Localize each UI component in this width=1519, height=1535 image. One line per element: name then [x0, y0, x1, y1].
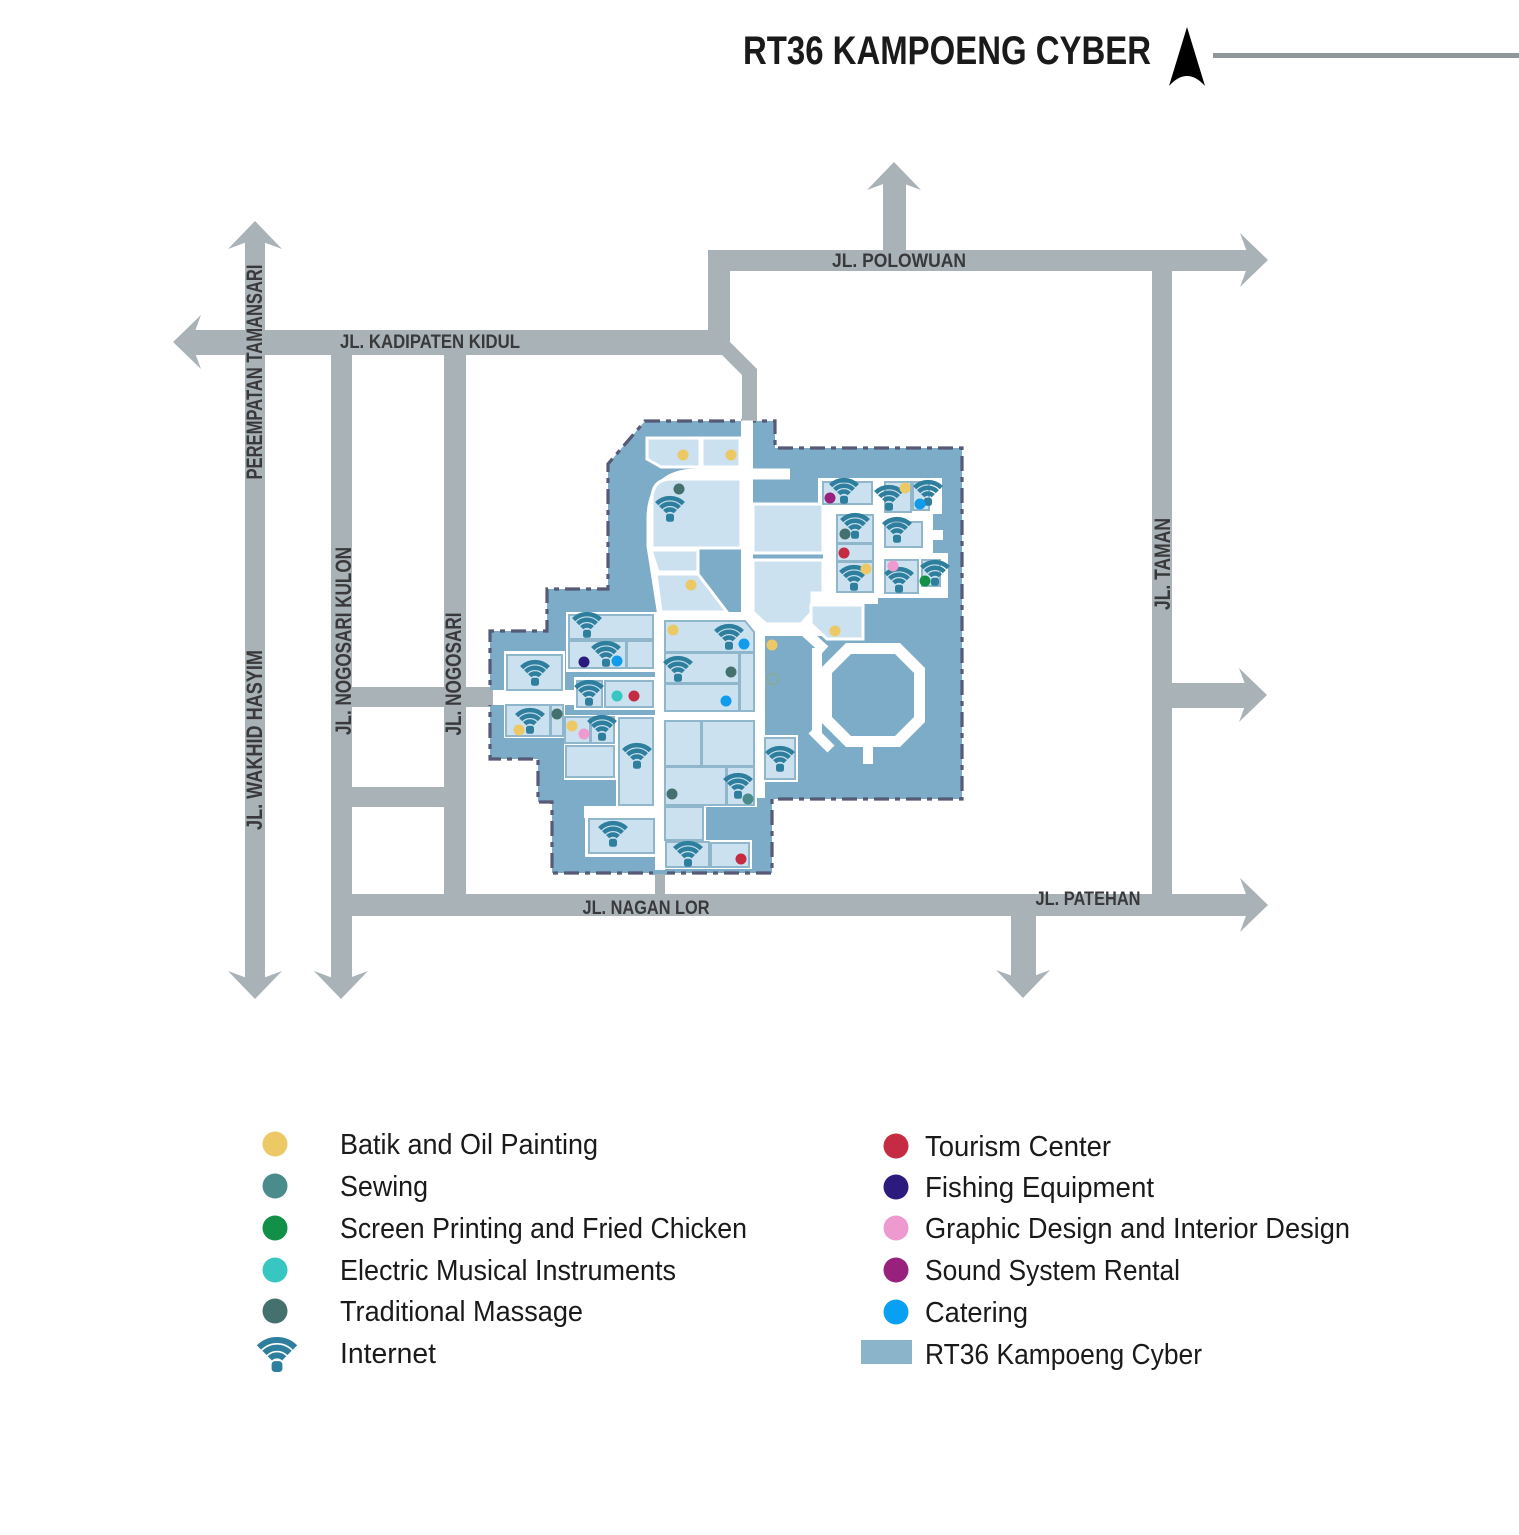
- svg-text:JL. NOGOSARI KULON: JL. NOGOSARI KULON: [331, 547, 356, 735]
- svg-text:RT36 Kampoeng Cyber: RT36 Kampoeng Cyber: [925, 1339, 1202, 1371]
- svg-text:JL. TAMAN: JL. TAMAN: [1150, 518, 1175, 610]
- svg-text:Tourism Center: Tourism Center: [925, 1131, 1111, 1163]
- svg-text:Fishing Equipment: Fishing Equipment: [925, 1172, 1154, 1204]
- svg-text:JL. WAKHID HASYIM: JL. WAKHID HASYIM: [242, 650, 267, 830]
- svg-text:JL. PATEHAN: JL. PATEHAN: [1036, 889, 1141, 910]
- svg-text:JL. NAGAN LOR: JL. NAGAN LOR: [583, 898, 710, 919]
- svg-text:Catering: Catering: [925, 1297, 1028, 1329]
- svg-text:Screen Printing and Fried Chic: Screen Printing and Fried Chicken: [340, 1213, 747, 1245]
- svg-text:Graphic Design and Interior De: Graphic Design and Interior Design: [925, 1213, 1350, 1245]
- svg-text:JL. NOGOSARI: JL. NOGOSARI: [441, 613, 466, 736]
- svg-text:RT36 KAMPOENG CYBER: RT36 KAMPOENG CYBER: [743, 29, 1151, 73]
- svg-text:Sound System Rental: Sound System Rental: [925, 1255, 1180, 1287]
- svg-text:JL. POLOWUAN: JL. POLOWUAN: [832, 251, 966, 272]
- svg-text:JL. KADIPATEN KIDUL: JL. KADIPATEN KIDUL: [340, 332, 520, 353]
- svg-text:Sewing: Sewing: [340, 1171, 428, 1203]
- svg-text:Batik and Oil Painting: Batik and Oil Painting: [340, 1129, 598, 1161]
- svg-text:Electric Musical Instruments: Electric Musical Instruments: [340, 1255, 676, 1287]
- svg-text:Internet: Internet: [340, 1338, 436, 1370]
- svg-text:PEREMPATAN TAMANSARI: PEREMPATAN TAMANSARI: [242, 265, 267, 480]
- svg-text:Traditional Massage: Traditional Massage: [340, 1296, 583, 1328]
